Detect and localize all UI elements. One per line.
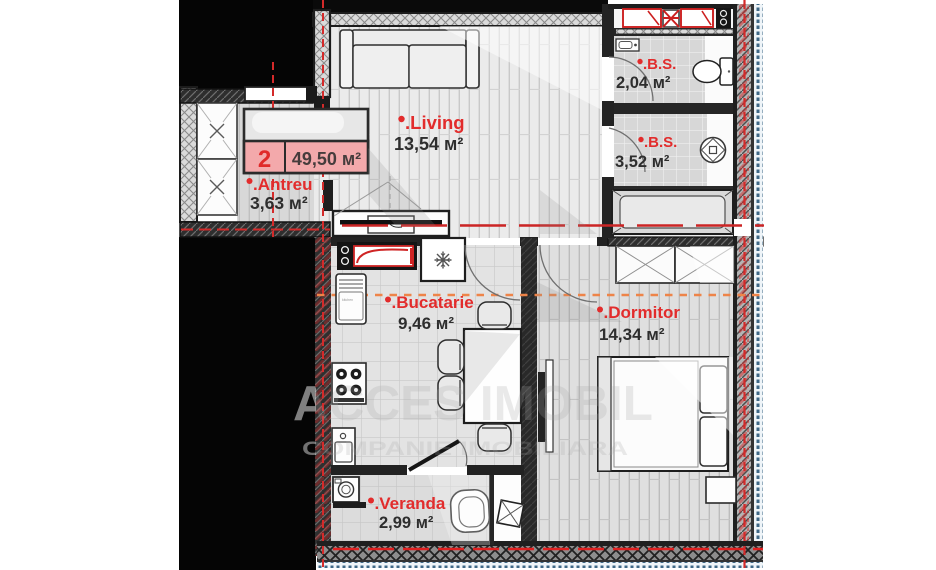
svg-text:.Dormitor: .Dormitor	[604, 303, 681, 322]
svg-text:.B.S.: .B.S.	[643, 56, 676, 73]
svg-text:kitchen: kitchen	[342, 298, 353, 302]
svg-text:.Veranda: .Veranda	[375, 494, 446, 513]
svg-text:ACCES IMOBIL: ACCES IMOBIL	[293, 377, 653, 431]
svg-text:.Bucatarie: .Bucatarie	[392, 293, 474, 312]
svg-text:.Living: .Living	[405, 112, 465, 133]
svg-text:3,63 м²: 3,63 м²	[250, 193, 308, 213]
svg-text:2,99 м²: 2,99 м²	[379, 514, 434, 532]
svg-text:13,54 м²: 13,54 м²	[394, 134, 463, 154]
svg-text:14,34 м²: 14,34 м²	[599, 325, 665, 344]
svg-text:49,50 м²: 49,50 м²	[292, 149, 361, 169]
svg-text:3,52 м²: 3,52 м²	[615, 153, 670, 171]
svg-text:9,46 м²: 9,46 м²	[398, 314, 454, 333]
svg-text:2,04 м²: 2,04 м²	[616, 74, 671, 92]
svg-text:COMPANIE IMOBILIARA: COMPANIE IMOBILIARA	[302, 439, 628, 460]
svg-text:.Antreu: .Antreu	[253, 175, 313, 194]
svg-text:2: 2	[258, 146, 271, 173]
svg-text:.B.S.: .B.S.	[644, 134, 677, 151]
